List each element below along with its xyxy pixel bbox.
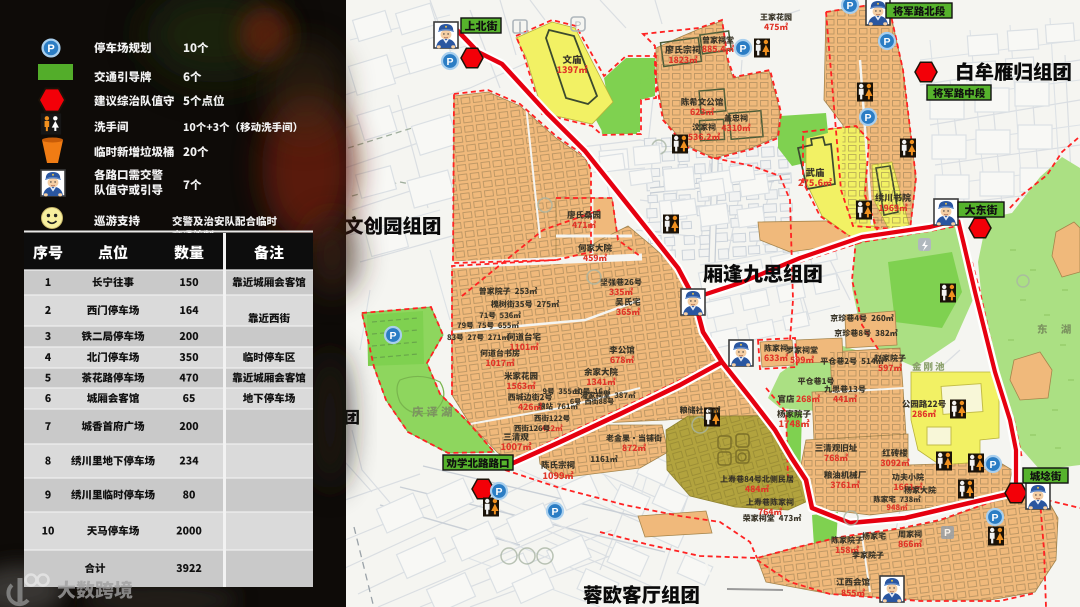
svg-text:P: P (575, 21, 582, 32)
svg-text:P: P (944, 528, 951, 539)
